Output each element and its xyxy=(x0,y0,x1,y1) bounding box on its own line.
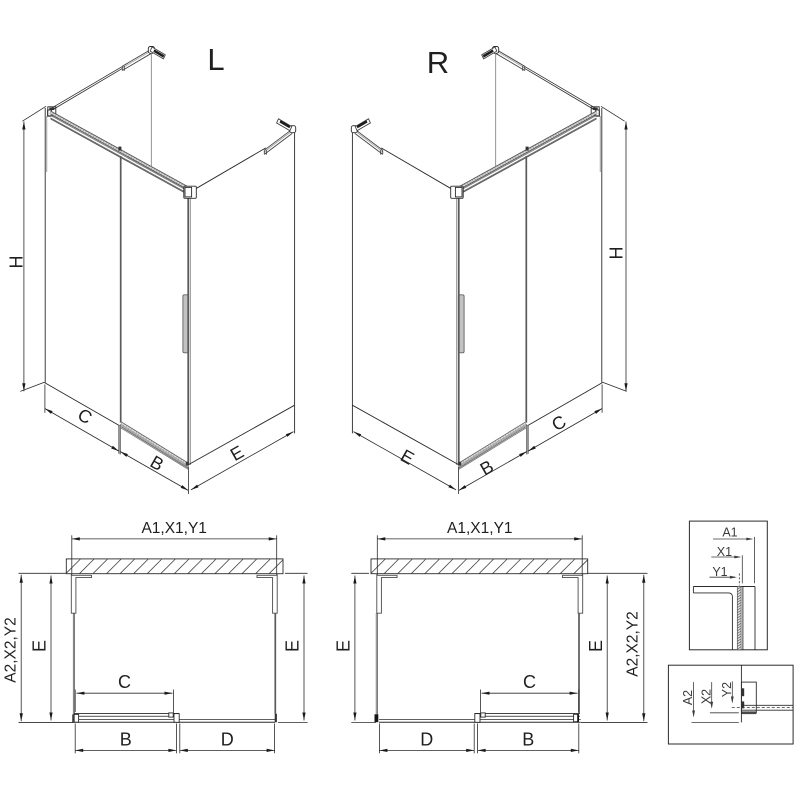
svg-text:E: E xyxy=(283,640,303,652)
svg-text:E: E xyxy=(334,640,354,652)
svg-text:B: B xyxy=(120,730,132,750)
svg-text:Y2: Y2 xyxy=(720,682,734,697)
svg-text:H: H xyxy=(607,247,627,260)
svg-text:A2,X2,Y2: A2,X2,Y2 xyxy=(625,611,642,677)
svg-text:B: B xyxy=(522,730,534,750)
svg-text:R: R xyxy=(427,45,449,80)
svg-text:A1,X1,Y1: A1,X1,Y1 xyxy=(141,520,207,537)
svg-text:C: C xyxy=(118,672,131,692)
svg-text:C: C xyxy=(523,672,536,692)
svg-text:L: L xyxy=(207,42,224,77)
svg-text:A1: A1 xyxy=(722,526,737,540)
svg-text:A2: A2 xyxy=(681,690,695,705)
svg-text:D: D xyxy=(420,730,433,750)
svg-text:A1,X1,Y1: A1,X1,Y1 xyxy=(447,520,513,537)
svg-text:D: D xyxy=(221,730,234,750)
svg-text:E: E xyxy=(30,640,50,652)
svg-text:H: H xyxy=(6,256,26,269)
svg-text:A2,X2,Y2: A2,X2,Y2 xyxy=(2,617,19,683)
svg-text:E: E xyxy=(586,640,606,652)
